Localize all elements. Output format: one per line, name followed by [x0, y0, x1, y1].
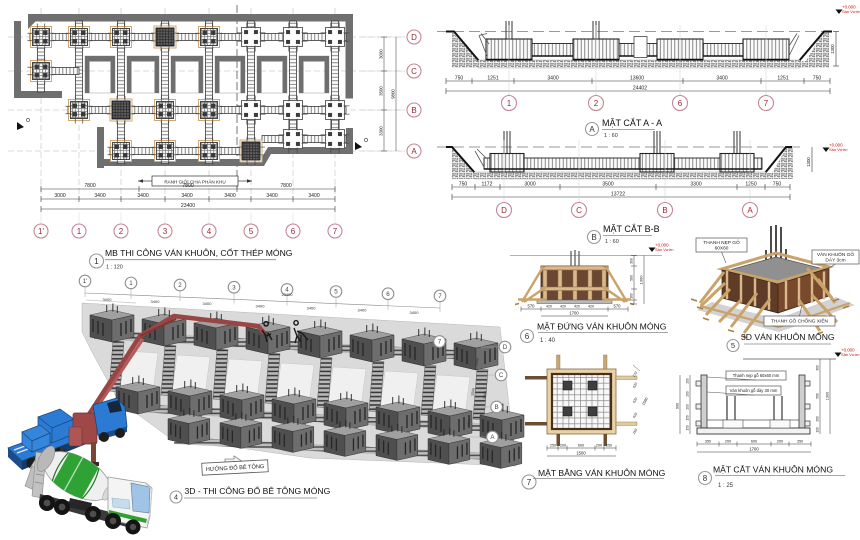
svg-text:Sàn Vườn: Sàn Vườn [842, 9, 860, 14]
svg-text:570: 570 [614, 304, 622, 309]
svg-text:3400: 3400 [547, 76, 558, 82]
svg-text:D: D [503, 344, 508, 351]
svg-text:B: B [591, 233, 596, 242]
svg-text:3D - THI CÔNG ĐỔ BÊ TÔNG MÓNG: 3D - THI CÔNG ĐỔ BÊ TÔNG MÓNG [185, 485, 331, 496]
svg-text:D: D [411, 33, 417, 42]
svg-text:THANH NẸP GỖ: THANH NẸP GỖ [703, 239, 740, 246]
svg-text:2: 2 [119, 227, 124, 236]
svg-text:B: B [495, 404, 499, 411]
svg-text:6: 6 [678, 99, 683, 108]
svg-text:3400: 3400 [308, 193, 319, 199]
svg-text:C: C [411, 67, 417, 76]
svg-text:3D VÁN KHUÔN MÓNG: 3D VÁN KHUÔN MÓNG [741, 332, 835, 342]
svg-text:3400: 3400 [137, 193, 148, 199]
svg-text:C: C [499, 372, 504, 379]
svg-text:1300: 1300 [830, 44, 835, 54]
svg-text:7: 7 [438, 339, 442, 346]
svg-text:3400: 3400 [181, 193, 192, 199]
svg-text:3500: 3500 [379, 86, 384, 96]
svg-text:MB THI CÔNG VÁN KHUÔN, CỐT THÉ: MB THI CÔNG VÁN KHUÔN, CỐT THÉP MÓNG [105, 247, 293, 258]
svg-text:1500: 1500 [576, 451, 586, 456]
svg-text:200: 200 [777, 440, 783, 444]
svg-text:250: 250 [606, 444, 612, 448]
svg-text:1: 1 [77, 227, 82, 236]
svg-text:9800: 9800 [391, 89, 396, 99]
svg-text:6: 6 [525, 332, 530, 341]
svg-text:1580: 1580 [641, 397, 649, 406]
svg-text:5: 5 [731, 341, 735, 350]
svg-text:MẶT ĐỨNG VÁN KHUÔN MÓNG: MẶT ĐỨNG VÁN KHUÔN MÓNG [537, 322, 667, 332]
svg-text:1250: 1250 [745, 182, 756, 188]
svg-text:350: 350 [797, 440, 803, 444]
svg-text:1251: 1251 [487, 76, 498, 82]
svg-text:MẶT BẰNG VÁN KHUÔN MÓNG: MẶT BẰNG VÁN KHUÔN MÓNG [538, 468, 666, 478]
svg-text:7800: 7800 [84, 183, 95, 189]
svg-text:200: 200 [686, 404, 690, 410]
svg-text:260: 260 [816, 416, 820, 422]
svg-text:Sàn Vườn: Sàn Vườn [655, 247, 673, 252]
svg-text:750: 750 [459, 182, 468, 188]
svg-text:420: 420 [588, 305, 594, 309]
svg-text:200: 200 [686, 378, 690, 384]
svg-text:1300: 1300 [826, 392, 830, 400]
svg-text:7: 7 [764, 99, 769, 108]
svg-text:420: 420 [632, 382, 638, 389]
svg-text:1 : 25: 1 : 25 [718, 483, 734, 489]
svg-text:580: 580 [630, 275, 634, 281]
svg-text:160: 160 [630, 293, 634, 299]
svg-text:2: 2 [178, 282, 182, 289]
svg-text:3000: 3000 [524, 182, 535, 188]
svg-text:3400: 3400 [256, 303, 266, 308]
svg-text:200: 200 [725, 440, 731, 444]
svg-text:7: 7 [438, 293, 442, 300]
svg-text:3: 3 [232, 284, 236, 291]
svg-text:420: 420 [632, 397, 638, 404]
svg-text:6: 6 [386, 291, 390, 298]
svg-text:4: 4 [174, 493, 178, 502]
svg-text:1': 1' [38, 227, 44, 236]
svg-text:360: 360 [816, 365, 820, 371]
svg-text:4: 4 [207, 227, 212, 236]
svg-text:3400: 3400 [410, 310, 420, 315]
svg-text:2: 2 [594, 99, 599, 108]
svg-text:1700: 1700 [749, 447, 759, 452]
svg-text:D: D [501, 206, 507, 215]
svg-text:8: 8 [703, 474, 708, 483]
svg-text:A: A [589, 125, 595, 134]
svg-text:1700: 1700 [569, 311, 579, 316]
svg-text:600: 600 [751, 440, 757, 444]
svg-text:3000: 3000 [379, 49, 384, 59]
svg-text:100: 100 [816, 427, 820, 433]
svg-text:6: 6 [291, 227, 296, 236]
svg-text:B: B [662, 206, 667, 215]
svg-text:MẶT CẮT B-B: MẶT CẮT B-B [603, 224, 660, 234]
svg-text:1251: 1251 [777, 76, 788, 82]
svg-text:150: 150 [686, 425, 690, 431]
svg-text:170: 170 [632, 371, 638, 378]
svg-text:3400: 3400 [266, 193, 277, 199]
svg-text:3500: 3500 [602, 182, 613, 188]
svg-text:3000: 3000 [54, 193, 65, 199]
svg-text:1 : 40: 1 : 40 [540, 338, 556, 344]
svg-text:1172: 1172 [482, 182, 493, 188]
svg-text:MẶT CẮT A - A: MẶT CẮT A - A [602, 118, 662, 128]
svg-text:600: 600 [578, 444, 584, 448]
svg-text:60X60: 60X60 [715, 246, 729, 252]
svg-text:3400: 3400 [307, 305, 317, 310]
svg-text:150: 150 [686, 415, 690, 421]
svg-text:300: 300 [630, 258, 634, 264]
svg-text:A: A [747, 206, 753, 215]
svg-text:750: 750 [773, 182, 782, 188]
svg-text:7: 7 [333, 227, 338, 236]
svg-text:570: 570 [528, 304, 536, 309]
svg-text:5: 5 [334, 289, 338, 296]
svg-text:VÁN KHUÔN GỖ: VÁN KHUÔN GỖ [817, 251, 855, 258]
svg-text:A: A [411, 147, 417, 156]
svg-text:3400: 3400 [716, 76, 727, 82]
svg-text:23400: 23400 [181, 203, 195, 209]
svg-text:7: 7 [527, 477, 532, 487]
svg-text:160: 160 [632, 428, 638, 435]
svg-text:420: 420 [560, 305, 566, 309]
svg-text:3400: 3400 [224, 193, 235, 199]
svg-text:1300: 1300 [639, 275, 644, 285]
svg-text:C: C [576, 206, 582, 215]
svg-text:13722: 13722 [611, 192, 625, 198]
svg-text:7800: 7800 [182, 183, 193, 189]
svg-text:MẶT CẮT VÁN KHUÔN MÓNG: MẶT CẮT VÁN KHUÔN MÓNG [713, 465, 833, 475]
svg-text:3: 3 [163, 227, 168, 236]
svg-text:3400: 3400 [358, 308, 368, 313]
svg-text:580: 580 [816, 393, 820, 399]
svg-text:200: 200 [560, 444, 566, 448]
svg-text:1 : 60: 1 : 60 [604, 133, 618, 139]
svg-text:200: 200 [686, 391, 690, 397]
svg-text:Ván khuôn gỗ dày 30 mm: Ván khuôn gỗ dày 30 mm [730, 388, 778, 393]
svg-text:1 : 120: 1 : 120 [106, 265, 123, 271]
svg-text:1': 1' [83, 278, 88, 285]
svg-text:200: 200 [596, 444, 602, 448]
svg-text:3400: 3400 [151, 299, 161, 304]
svg-text:5: 5 [249, 227, 254, 236]
svg-text:420: 420 [546, 305, 552, 309]
svg-text:420: 420 [574, 305, 580, 309]
svg-text:750: 750 [813, 76, 822, 82]
svg-text:250: 250 [550, 444, 556, 448]
svg-text:1: 1 [94, 256, 99, 266]
svg-text:3300: 3300 [379, 126, 384, 136]
svg-text:750: 750 [455, 76, 464, 82]
svg-text:3400: 3400 [203, 301, 213, 306]
svg-text:Thanh nẹp gỗ 60x60 mm: Thanh nẹp gỗ 60x60 mm [733, 373, 780, 378]
svg-text:Sàn Vườn: Sàn Vườn [829, 147, 847, 152]
svg-text:1: 1 [507, 99, 512, 108]
svg-text:3300: 3300 [690, 182, 701, 188]
svg-text:350: 350 [705, 440, 711, 444]
svg-text:420: 420 [632, 412, 638, 419]
svg-text:24402: 24402 [633, 86, 647, 92]
svg-text:1300: 1300 [806, 157, 811, 167]
svg-text:13600: 13600 [630, 76, 644, 82]
svg-text:1: 1 [129, 280, 133, 287]
svg-text:3400: 3400 [94, 193, 105, 199]
svg-text:7800: 7800 [280, 183, 291, 189]
svg-text:900: 900 [676, 403, 680, 409]
svg-text:1 : 60: 1 : 60 [605, 239, 619, 245]
svg-text:23400: 23400 [281, 292, 293, 297]
svg-text:Sàn Vườn: Sàn Vườn [841, 352, 859, 357]
svg-text:3000: 3000 [103, 297, 113, 302]
svg-text:DÀY 3cm: DÀY 3cm [825, 257, 845, 264]
svg-text:B: B [411, 106, 416, 115]
svg-text:RANH GIỚI CHIA PHÂN KHU: RANH GIỚI CHIA PHÂN KHU [164, 178, 225, 184]
